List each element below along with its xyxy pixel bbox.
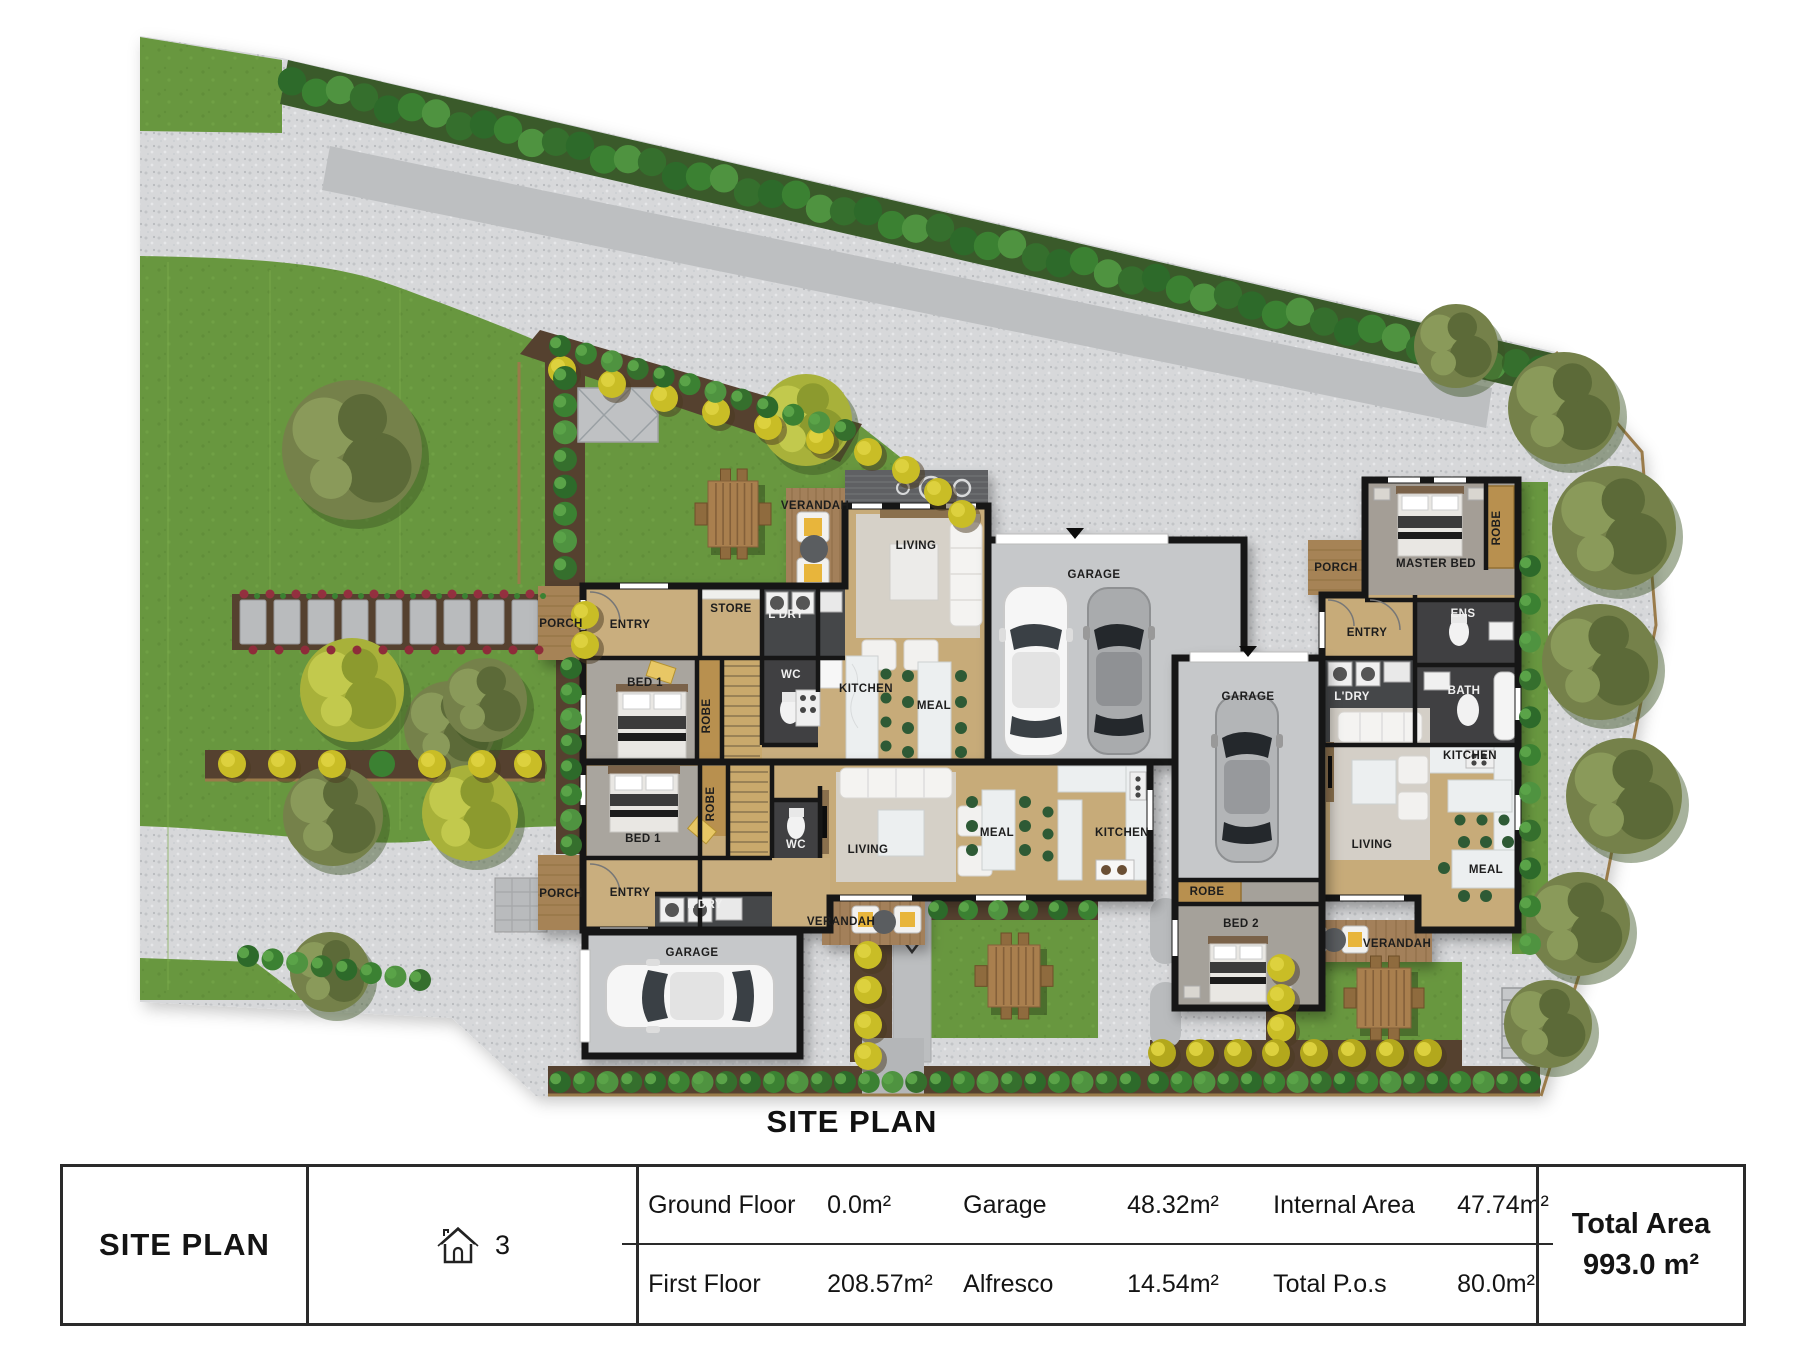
area-label: Internal Area: [1273, 1191, 1453, 1220]
room-label: VERANDAH: [781, 500, 849, 512]
legend-table: SITE PLAN 3 Ground Floor 0.0m² Garage 48…: [60, 1164, 1746, 1326]
area-label: Ground Floor: [648, 1191, 823, 1220]
area-label: Total P.o.s: [1273, 1270, 1453, 1299]
room-label: BED 1: [627, 677, 663, 689]
room-label: ENTRY: [610, 887, 651, 899]
site-plan-image: VERANDAHLIVINGSTOREL'DRYENTRYPORCHBED 1R…: [0, 0, 1800, 1350]
area-value: 0.0m²: [823, 1191, 963, 1220]
area-value: 47.74m²: [1453, 1191, 1549, 1220]
room-label: KITCHEN: [1095, 827, 1149, 839]
stepping-stone-path: [240, 600, 538, 644]
room-label: STORE: [710, 603, 751, 615]
area-label: Garage: [963, 1191, 1123, 1220]
room-label: PORCH: [539, 888, 583, 900]
site-plan-page: { "plan_title": "SITE PLAN", "legend": {…: [0, 0, 1800, 1350]
legend-lot-cell: 3: [306, 1167, 636, 1323]
area-label: Alfresco: [963, 1270, 1123, 1299]
car-gray-garage-a: [1083, 588, 1155, 754]
room-label: KITCHEN: [839, 683, 893, 695]
room-label: LIVING: [896, 540, 937, 552]
room-label: LIVING: [1352, 839, 1393, 851]
room-label: MEAL: [917, 700, 951, 712]
area-value: 208.57m²: [823, 1270, 963, 1299]
room-label: ENTRY: [610, 619, 651, 631]
room-label: ENS: [1451, 608, 1476, 620]
room-label: ROBE: [1190, 886, 1225, 898]
room-label: ROBE: [1491, 511, 1503, 546]
area-value: 14.54m²: [1123, 1270, 1273, 1299]
room-label: PORCH: [539, 618, 583, 630]
legend-name-cell: SITE PLAN: [63, 1167, 306, 1323]
room-label: BATH: [1448, 685, 1481, 697]
area-value: 80.0m²: [1453, 1270, 1549, 1299]
room-label: LIVING: [848, 844, 889, 856]
room-label: ENTRY: [1347, 627, 1388, 639]
room-label: L'DRY: [768, 609, 804, 621]
legend-areas-cell: Ground Floor 0.0m² Garage 48.32m² Intern…: [636, 1167, 1536, 1323]
total-area-label: Total Area: [1572, 1208, 1711, 1241]
room-label: MEAL: [1469, 864, 1503, 876]
room-label: MEAL: [980, 827, 1014, 839]
car-gray-garage-c: [1211, 696, 1283, 862]
car-white-garage-a: [999, 586, 1073, 756]
plan-title: SITE PLAN: [0, 1104, 1704, 1140]
room-label: L'DRY: [687, 899, 723, 911]
room-label: WC: [781, 669, 801, 681]
room-label: L'DRY: [1334, 691, 1370, 703]
car-white-garage-b: [606, 959, 774, 1033]
room-label: PORCH: [1314, 562, 1358, 574]
total-area-value: 993.0 m²: [1583, 1249, 1699, 1282]
legend-row-1: Ground Floor 0.0m² Garage 48.32m² Intern…: [622, 1167, 1553, 1245]
room-label: ROBE: [705, 787, 717, 822]
lot-number: 3: [495, 1230, 510, 1261]
room-label: VERANDAH: [1363, 938, 1431, 950]
house-icon: [435, 1224, 481, 1266]
room-label: BED 2: [1223, 918, 1259, 930]
legend-total-cell: Total Area 993.0 m²: [1536, 1167, 1743, 1323]
room-label: MASTER BED: [1396, 558, 1476, 570]
room-label: WC: [786, 839, 806, 851]
room-label: BED 1: [625, 833, 661, 845]
room-label: KITCHEN: [1443, 750, 1497, 762]
room-label: GARAGE: [1068, 569, 1121, 581]
room-label: GARAGE: [666, 947, 719, 959]
room-label: VERANDAH: [807, 916, 875, 928]
area-value: 48.32m²: [1123, 1191, 1273, 1220]
room-label: ROBE: [701, 699, 713, 734]
area-label: First Floor: [648, 1270, 823, 1299]
room-label: GARAGE: [1222, 691, 1275, 703]
legend-row-2: First Floor 208.57m² Alfresco 14.54m² To…: [622, 1245, 1553, 1323]
